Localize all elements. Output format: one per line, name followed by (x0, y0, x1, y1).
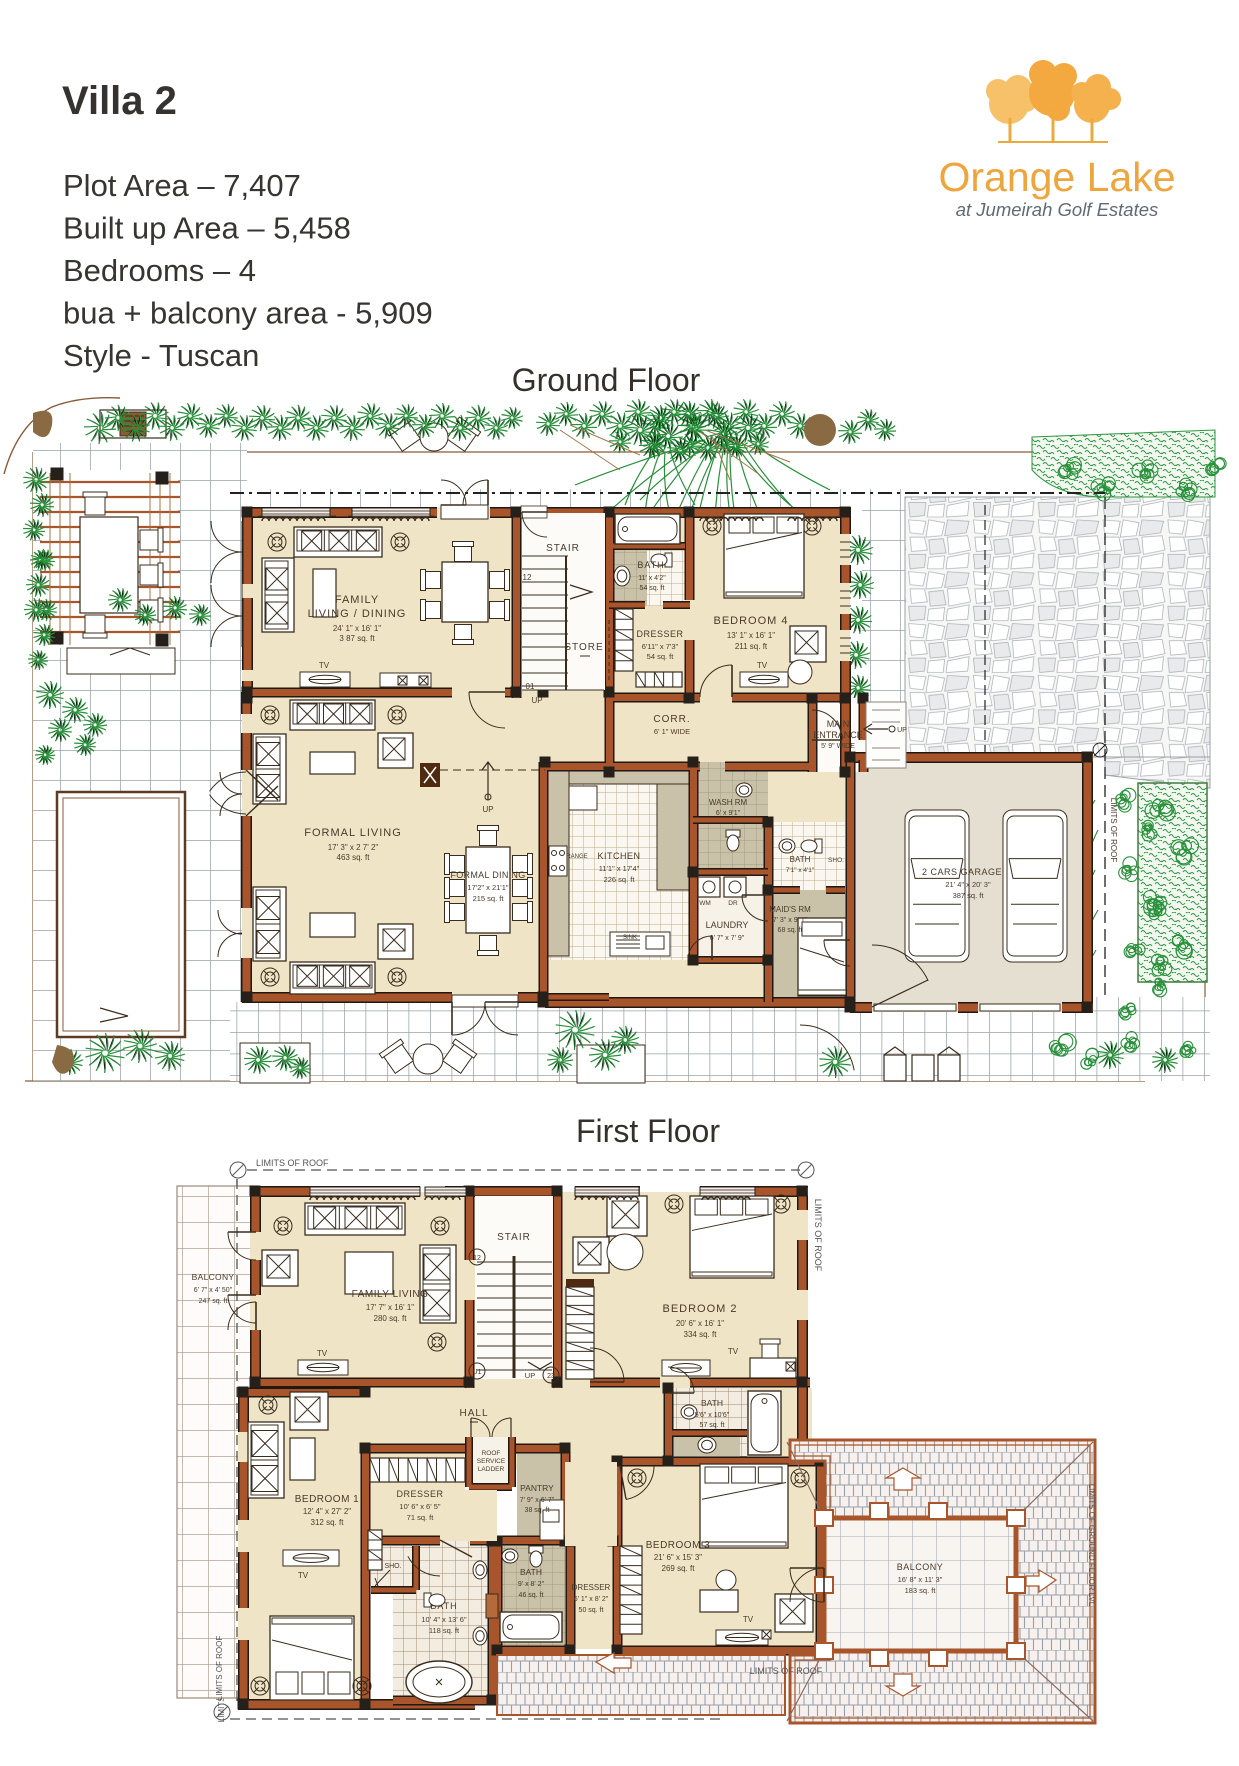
svg-text:50 sq. ft: 50 sq. ft (579, 1607, 604, 1614)
svg-text:6'11" x 7'3": 6'11" x 7'3" (642, 642, 679, 651)
svg-text:215 sq. ft: 215 sq. ft (473, 894, 505, 903)
svg-text:01: 01 (526, 682, 535, 691)
svg-text:BALCONY: BALCONY (897, 1562, 944, 1572)
svg-text:Style - Tuscan: Style - Tuscan (63, 338, 259, 373)
svg-text:FAMILY LIVING: FAMILY LIVING (352, 1289, 429, 1300)
svg-text:247 sq. ft: 247 sq. ft (199, 1298, 228, 1305)
svg-text:BEDROOM 2: BEDROOM 2 (662, 1303, 737, 1315)
svg-text:183 sq. ft: 183 sq. ft (905, 1586, 937, 1595)
svg-text:LIMITS OF ROOF: LIMITS OF ROOF (1109, 798, 1118, 863)
svg-text:269 sq. ft: 269 sq. ft (662, 1564, 696, 1573)
svg-text:UP: UP (531, 696, 542, 705)
svg-text:KITCHEN: KITCHEN (597, 851, 640, 861)
svg-text:BEDROOM 3: BEDROOM 3 (646, 1540, 711, 1551)
svg-text:UP: UP (482, 805, 493, 814)
svg-text:DRESSER: DRESSER (396, 1489, 443, 1499)
svg-text:TV: TV (319, 661, 330, 670)
svg-text:11' x 4'2": 11' x 4'2" (638, 575, 666, 582)
svg-text:12: 12 (523, 573, 532, 582)
svg-text:BALCONY: BALCONY (192, 1272, 235, 1282)
svg-text:LIMITS OF GROUND FLOOR LVL: LIMITS OF GROUND FLOOR LVL (1087, 1484, 1096, 1607)
svg-text:LADDER: LADDER (478, 1466, 505, 1473)
svg-text:FAMILY: FAMILY (335, 594, 379, 606)
svg-text:DR: DR (728, 900, 738, 907)
svg-text:38 sq. ft: 38 sq. ft (525, 1507, 550, 1514)
svg-text:387 sq. ft: 387 sq. ft (953, 891, 985, 900)
svg-text:HALL: HALL (459, 1408, 488, 1419)
svg-text:bua + balcony area - 5,909: bua + balcony area - 5,909 (63, 296, 433, 331)
svg-text:17' 7" x 16' 1": 17' 7" x 16' 1" (366, 1303, 414, 1312)
svg-text:23: 23 (547, 1373, 555, 1380)
svg-text:TV: TV (728, 1347, 739, 1356)
svg-text:20' 6" x 16' 1": 20' 6" x 16' 1" (676, 1319, 724, 1328)
svg-text:10' 6" x 6' 5": 10' 6" x 6' 5" (399, 1502, 440, 1511)
svg-text:BATH: BATH (790, 855, 811, 864)
svg-text:at Jumeirah Golf Estates: at Jumeirah Golf Estates (956, 199, 1159, 220)
svg-text:BEDROOM 4: BEDROOM 4 (713, 615, 788, 627)
svg-text:CORR.: CORR. (653, 714, 690, 725)
svg-text:LIMITS OF ROOF: LIMITS OF ROOF (215, 1636, 224, 1701)
svg-text:21' 4" x 20' 3": 21' 4" x 20' 3" (945, 880, 991, 889)
svg-text:334 sq. ft: 334 sq. ft (684, 1330, 718, 1339)
svg-text:DRESSER: DRESSER (636, 629, 683, 639)
svg-text:FORMAL LIVING: FORMAL LIVING (304, 827, 402, 839)
svg-text:16' 8" x 11' 3": 16' 8" x 11' 3" (898, 1575, 943, 1584)
svg-text:54 sq. ft: 54 sq. ft (647, 652, 675, 661)
svg-text:211 sq. ft: 211 sq. ft (735, 642, 768, 651)
svg-text:9' x 8' 2": 9' x 8' 2" (518, 1581, 545, 1588)
svg-text:PANTRY: PANTRY (520, 1483, 554, 1493)
svg-text:SINK: SINK (623, 935, 637, 941)
svg-text:BEDROOM 1: BEDROOM 1 (295, 1494, 360, 1505)
svg-text:LIMITS OF ROOF: LIMITS OF ROOF (256, 1158, 329, 1168)
svg-text:71 sq. ft: 71 sq. ft (407, 1513, 435, 1522)
svg-text:57 sq. ft: 57 sq. ft (700, 1422, 725, 1429)
svg-text:3 87 sq. ft: 3 87 sq. ft (339, 634, 375, 643)
svg-text:BATH: BATH (701, 1398, 723, 1408)
svg-text:STAIR: STAIR (497, 1232, 531, 1243)
svg-text:Villa 2: Villa 2 (62, 79, 177, 123)
svg-text:5'6" x 10'6": 5'6" x 10'6" (695, 1412, 730, 1419)
svg-text:RANGE: RANGE (566, 854, 587, 860)
svg-text:UP: UP (525, 1371, 535, 1380)
svg-text:6' 1" WIDE: 6' 1" WIDE (654, 727, 690, 736)
svg-text:LIVING / DINING: LIVING / DINING (308, 608, 407, 620)
svg-text:10' 4" x 13' 6": 10' 4" x 13' 6" (421, 1615, 467, 1624)
svg-text:Bedrooms – 4: Bedrooms – 4 (63, 253, 256, 288)
svg-text:TV: TV (757, 661, 768, 670)
svg-text:STAIR: STAIR (546, 543, 580, 554)
svg-text:46 sq. ft: 46 sq. ft (519, 1592, 544, 1599)
svg-text:DRESSER: DRESSER (572, 1583, 611, 1592)
svg-text:TV: TV (298, 1571, 309, 1580)
svg-text:LIMITS OF ROOF: LIMITS OF ROOF (813, 1199, 823, 1272)
svg-text:BATH: BATH (637, 560, 664, 570)
svg-text:5' 9" WIDE: 5' 9" WIDE (821, 743, 855, 750)
svg-text:2 CARS GARAGE: 2 CARS GARAGE (922, 867, 1002, 877)
svg-text:7' 3" x 9' 1": 7' 3" x 9' 1" (773, 917, 808, 924)
svg-text:21' 6" x 15' 3": 21' 6" x 15' 3" (654, 1553, 702, 1562)
svg-text:STORE: STORE (564, 642, 603, 653)
svg-text:6' 7" x 7' 9": 6' 7" x 7' 9" (710, 935, 745, 942)
svg-text:MAID'S RM: MAID'S RM (769, 905, 811, 914)
svg-text:24' 1" x 16' 1": 24' 1" x 16' 1" (333, 624, 381, 633)
svg-text:U1: U1 (473, 1369, 482, 1376)
svg-text:6' 1" x 8' 2": 6' 1" x 8' 2" (574, 1596, 609, 1603)
svg-text:12' 4" x 27' 2": 12' 4" x 27' 2" (303, 1507, 351, 1516)
svg-text:463 sq. ft: 463 sq. ft (337, 853, 371, 862)
svg-text:7'1" x 4'1": 7'1" x 4'1" (786, 867, 815, 874)
svg-text:280 sq. ft: 280 sq. ft (374, 1314, 408, 1323)
svg-text:12: 12 (473, 1255, 481, 1262)
svg-text:118 sq. ft: 118 sq. ft (429, 1626, 460, 1635)
svg-text:FORMAL DINING: FORMAL DINING (450, 870, 525, 880)
svg-text:11'1" x 17'4": 11'1" x 17'4" (599, 864, 640, 873)
svg-text:ROOF: ROOF (482, 1450, 501, 1457)
svg-text:ENTRANCE: ENTRANCE (813, 730, 863, 740)
svg-text:17'2" x 21'1": 17'2" x 21'1" (467, 883, 508, 892)
svg-text:LAUNDRY: LAUNDRY (706, 920, 749, 930)
svg-text:UP: UP (897, 727, 907, 734)
svg-text:Plot Area – 7,407: Plot Area – 7,407 (63, 168, 301, 203)
svg-text:TV: TV (743, 1615, 754, 1624)
svg-text:54 sq. ft: 54 sq. ft (640, 585, 665, 592)
svg-text:17' 3" x 2 7' 2": 17' 3" x 2 7' 2" (328, 843, 379, 852)
svg-text:6' x 9'1": 6' x 9'1" (716, 810, 741, 817)
svg-text:Ground Floor: Ground Floor (512, 362, 701, 398)
svg-text:WASH RM: WASH RM (709, 798, 748, 807)
svg-text:First Floor: First Floor (576, 1113, 720, 1149)
svg-text:226 sq. ft: 226 sq. ft (604, 875, 636, 884)
svg-text:6' 7" x 4' 50": 6' 7" x 4' 50" (194, 1287, 233, 1294)
svg-text:Built up Area – 5,458: Built up Area – 5,458 (63, 211, 351, 246)
svg-text:Orange Lake: Orange Lake (938, 154, 1175, 200)
svg-text:LIMITS OF ROOF: LIMITS OF ROOF (750, 1666, 823, 1676)
svg-text:312 sq. ft: 312 sq. ft (311, 1518, 345, 1527)
svg-text:68 sq. ft: 68 sq. ft (778, 927, 803, 934)
svg-text:SHO.: SHO. (384, 1563, 401, 1570)
svg-text:SHO.: SHO. (828, 857, 844, 864)
svg-text:TV: TV (317, 1349, 328, 1358)
svg-text:13' 1" x 16' 1": 13' 1" x 16' 1" (727, 631, 775, 640)
svg-text:SERVICE: SERVICE (477, 1458, 506, 1465)
svg-text:BATH: BATH (520, 1567, 542, 1577)
svg-text:7' 9" x 6' 7": 7' 9" x 6' 7" (520, 1497, 555, 1504)
svg-text:WM: WM (699, 900, 711, 907)
